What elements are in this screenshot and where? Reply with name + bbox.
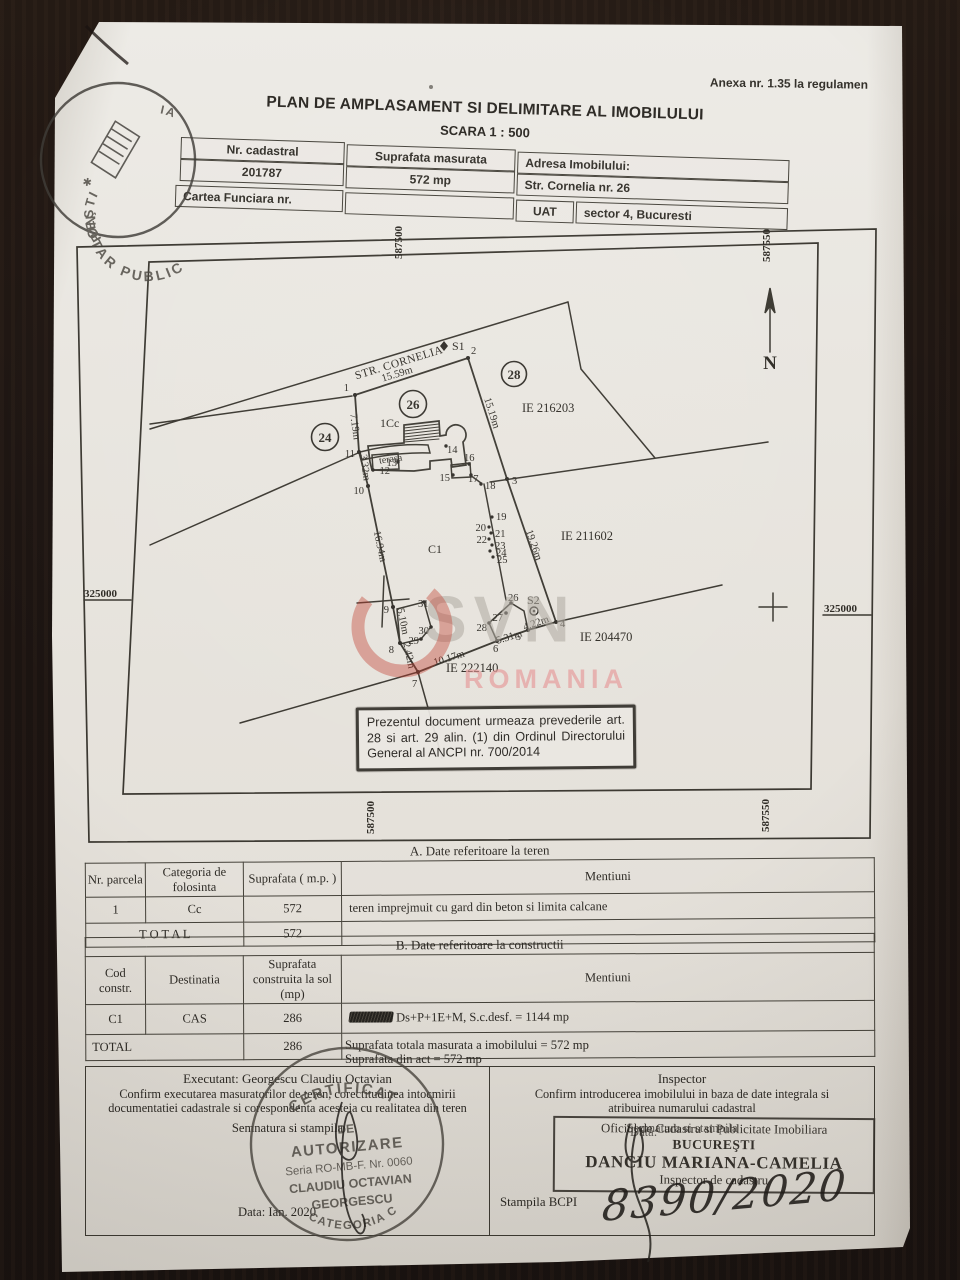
watermark-swoosh — [340, 565, 464, 689]
stamps-overlay: NOTAR PUBLIC REŞTI IA ✱ CERTIFICAT DE AU… — [0, 0, 960, 1280]
svg-text:IA: IA — [159, 102, 179, 121]
ink-speck — [429, 85, 433, 89]
stamp-de: DE — [337, 1121, 355, 1136]
notary-stamp: NOTAR PUBLIC REŞTI IA ✱ — [25, 73, 212, 290]
stamp-name-2: GEORGESCU — [311, 1191, 393, 1212]
svg-text:REŞTI: REŞTI — [76, 187, 110, 246]
executant-round-stamp: CERTIFICAT DE AUTORIZARE Seria RO-MB-F. … — [243, 1040, 451, 1248]
svg-text:CERTIFICAT: CERTIFICAT — [284, 1075, 402, 1117]
stamp-certificat: CERTIFICAT — [284, 1075, 402, 1117]
notary-city-text: REŞTI — [76, 187, 110, 246]
scratch-mark — [86, 26, 128, 64]
inspector-signature — [626, 1124, 651, 1262]
notary-top-text: IA — [159, 102, 179, 121]
notary-emblem — [90, 119, 141, 181]
notary-star: ✱ — [82, 176, 93, 189]
